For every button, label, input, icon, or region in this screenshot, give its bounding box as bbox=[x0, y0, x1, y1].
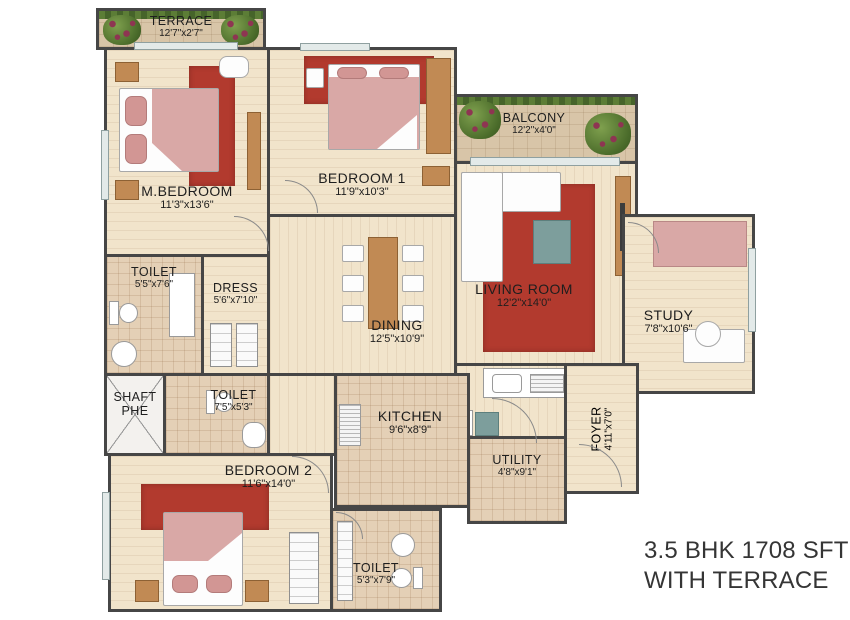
window bbox=[134, 42, 238, 50]
caption-line2: WITH TERRACE bbox=[644, 566, 849, 596]
desk-chair bbox=[695, 321, 721, 347]
room-dims: 11'3"x13'6" bbox=[107, 199, 267, 212]
blanket-fold bbox=[208, 533, 242, 561]
blanket-fold bbox=[377, 115, 417, 149]
room-dims: 4'8"x9'1" bbox=[470, 467, 564, 479]
caption-line1: 3.5 BHK 1708 SFT bbox=[644, 536, 849, 566]
room-kitchen: KITCHEN 9'6"x8'9" bbox=[334, 373, 470, 508]
plant-icon bbox=[585, 113, 631, 155]
coffee-table bbox=[533, 220, 571, 264]
window bbox=[300, 43, 370, 51]
pillow bbox=[337, 67, 367, 79]
window bbox=[101, 130, 109, 200]
dining-chair bbox=[342, 305, 364, 322]
kitchen-counter bbox=[483, 368, 569, 398]
pillow bbox=[125, 96, 147, 126]
sofa bbox=[461, 172, 503, 282]
wardrobe bbox=[289, 532, 319, 604]
room-name: PHE bbox=[107, 404, 163, 418]
room-name: STUDY bbox=[625, 307, 712, 323]
dining-chair bbox=[402, 245, 424, 262]
room-name: DRESS bbox=[204, 281, 267, 295]
toilet-tank bbox=[206, 390, 215, 414]
room-name: UTILITY bbox=[470, 453, 564, 467]
room-label: UTILITY 4'8"x9'1" bbox=[470, 453, 564, 479]
dining-chair bbox=[342, 245, 364, 262]
toilet-bowl bbox=[391, 568, 412, 588]
room-toilet-common: TOILET 7'5"x5'3" bbox=[163, 373, 270, 456]
closet bbox=[236, 323, 258, 367]
daybed bbox=[653, 221, 747, 267]
wardrobe bbox=[426, 58, 451, 154]
room-dims: 9'6"x8'9" bbox=[353, 424, 467, 437]
room-label: DRESS 5'6"x7'10" bbox=[204, 281, 267, 307]
plant-icon bbox=[459, 101, 501, 139]
closet bbox=[210, 323, 232, 367]
dining-chair bbox=[402, 275, 424, 292]
nightstand bbox=[115, 62, 139, 82]
room-label: SHAFT PHE bbox=[107, 390, 163, 419]
dressing-stool bbox=[219, 56, 249, 78]
shower bbox=[169, 273, 195, 337]
nightstand bbox=[306, 68, 324, 88]
room-foyer: FOYER 4'11"x7'0" bbox=[564, 363, 639, 494]
kitchen-sink bbox=[492, 374, 522, 393]
dining-chair bbox=[342, 275, 364, 292]
room-dining: DINING 12'5"x10'9" bbox=[267, 214, 457, 376]
bed bbox=[328, 64, 420, 150]
room-toilet-master: TOILET 5'5"x7'6" bbox=[104, 254, 204, 376]
stove bbox=[339, 404, 361, 446]
room-dress: DRESS 5'6"x7'10" bbox=[201, 254, 270, 376]
room-name: KITCHEN bbox=[353, 408, 467, 424]
toilet-bowl bbox=[119, 303, 138, 323]
plant-icon bbox=[103, 15, 141, 45]
room-utility: UTILITY 4'8"x9'1" bbox=[467, 436, 567, 524]
window bbox=[470, 157, 620, 166]
entrance-door-arc bbox=[579, 444, 622, 487]
room-balcony: BALCONY 12'2"x4'0" bbox=[454, 94, 638, 164]
room-dims: 5'6"x7'10" bbox=[204, 295, 267, 307]
dining-chair bbox=[402, 305, 424, 322]
pillow bbox=[172, 575, 198, 593]
blanket-fold bbox=[152, 143, 182, 171]
window bbox=[748, 248, 756, 332]
dresser bbox=[422, 166, 450, 186]
toilet-tank bbox=[413, 567, 423, 589]
toilet-bowl bbox=[215, 392, 233, 412]
sink bbox=[242, 422, 266, 448]
sink bbox=[391, 533, 415, 557]
sink bbox=[111, 341, 137, 367]
room-name: SHAFT bbox=[107, 390, 163, 404]
room-shaft: SHAFT PHE bbox=[104, 373, 166, 456]
hallway bbox=[267, 373, 337, 456]
dresser bbox=[247, 112, 261, 190]
pillow bbox=[206, 575, 232, 593]
bed bbox=[119, 88, 219, 172]
nightstand bbox=[115, 180, 139, 200]
dining-table bbox=[368, 237, 398, 329]
nightstand bbox=[245, 580, 269, 602]
floor-plan-canvas: TERRACE 12'7"x2'7" M.BEDROOM 11'3"x13'6" bbox=[0, 0, 850, 620]
plan-caption: 3.5 BHK 1708 SFT WITH TERRACE bbox=[644, 536, 849, 596]
drainboard bbox=[530, 374, 564, 393]
pillow bbox=[125, 134, 147, 164]
toilet-tank bbox=[109, 301, 119, 325]
nightstand bbox=[135, 580, 159, 602]
pillow bbox=[379, 67, 409, 79]
bed bbox=[163, 512, 243, 606]
plant-icon bbox=[221, 15, 259, 45]
room-living: LIVING ROOM 12'2"x14'0" bbox=[454, 161, 638, 366]
room-dims: 12'5"x10'9" bbox=[340, 333, 454, 346]
window bbox=[102, 492, 110, 580]
